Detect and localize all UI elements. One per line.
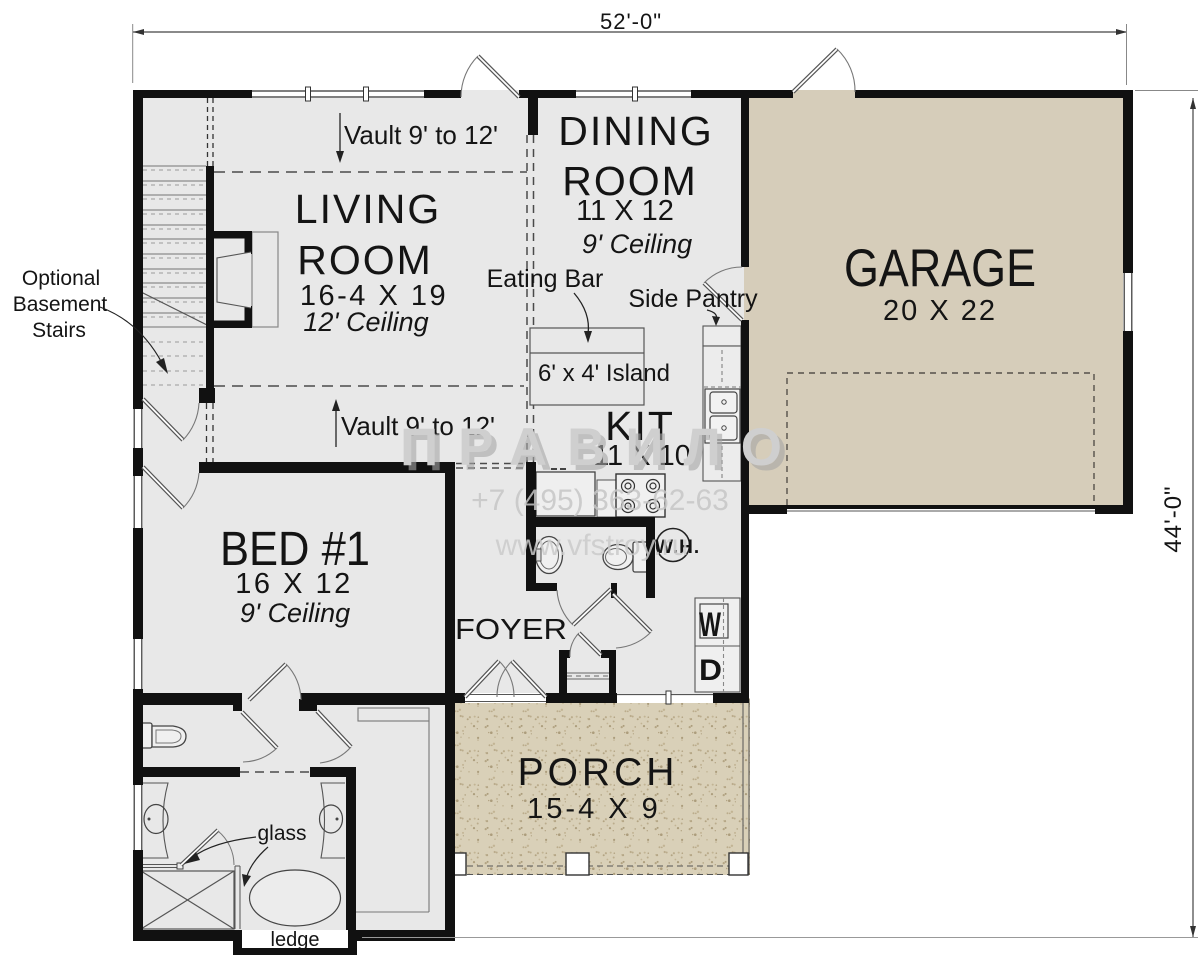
svg-text:ledge: ledge xyxy=(271,929,320,951)
svg-text:6' x 4' Island: 6' x 4' Island xyxy=(538,360,670,387)
svg-text:LIVING: LIVING xyxy=(295,186,441,232)
svg-text:glass: glass xyxy=(257,822,306,845)
svg-text:PORCH: PORCH xyxy=(518,751,679,794)
svg-text:11 X 12: 11 X 12 xyxy=(576,195,674,227)
svg-text:Vault 9' to 12': Vault 9' to 12' xyxy=(344,120,498,150)
svg-text:52'-0": 52'-0" xyxy=(600,9,662,34)
svg-text:9' Ceiling: 9' Ceiling xyxy=(582,229,692,259)
svg-text:ROOM: ROOM xyxy=(297,237,433,283)
svg-text:9' Ceiling: 9' Ceiling xyxy=(240,598,350,628)
svg-text:Side Pantry: Side Pantry xyxy=(628,285,758,313)
svg-text:W: W xyxy=(699,606,722,644)
svg-text:44'-0": 44'-0" xyxy=(1160,485,1187,552)
svg-text:+7 (495) 363-62-63: +7 (495) 363-62-63 xyxy=(471,484,729,517)
svg-text:20 X 22: 20 X 22 xyxy=(883,295,997,327)
svg-text:D: D xyxy=(699,654,722,687)
svg-text:GARAGE: GARAGE xyxy=(844,239,1036,298)
svg-text:FOYER: FOYER xyxy=(455,614,567,646)
svg-text:Eating Bar: Eating Bar xyxy=(487,265,604,293)
svg-text:www.vfstroy.ru: www.vfstroy.ru xyxy=(495,529,689,562)
svg-text:15-4 X 9: 15-4 X 9 xyxy=(527,793,661,825)
svg-text:12' Ceiling: 12' Ceiling xyxy=(303,307,428,337)
svg-text:Basement: Basement xyxy=(13,293,108,316)
svg-text:16 X 12: 16 X 12 xyxy=(235,568,352,600)
svg-text:ПРАВИЛО: ПРАВИЛО xyxy=(400,418,802,477)
svg-text:Optional: Optional xyxy=(22,267,100,290)
svg-text:DINING: DINING xyxy=(558,108,714,154)
svg-text:Stairs: Stairs xyxy=(32,319,86,342)
